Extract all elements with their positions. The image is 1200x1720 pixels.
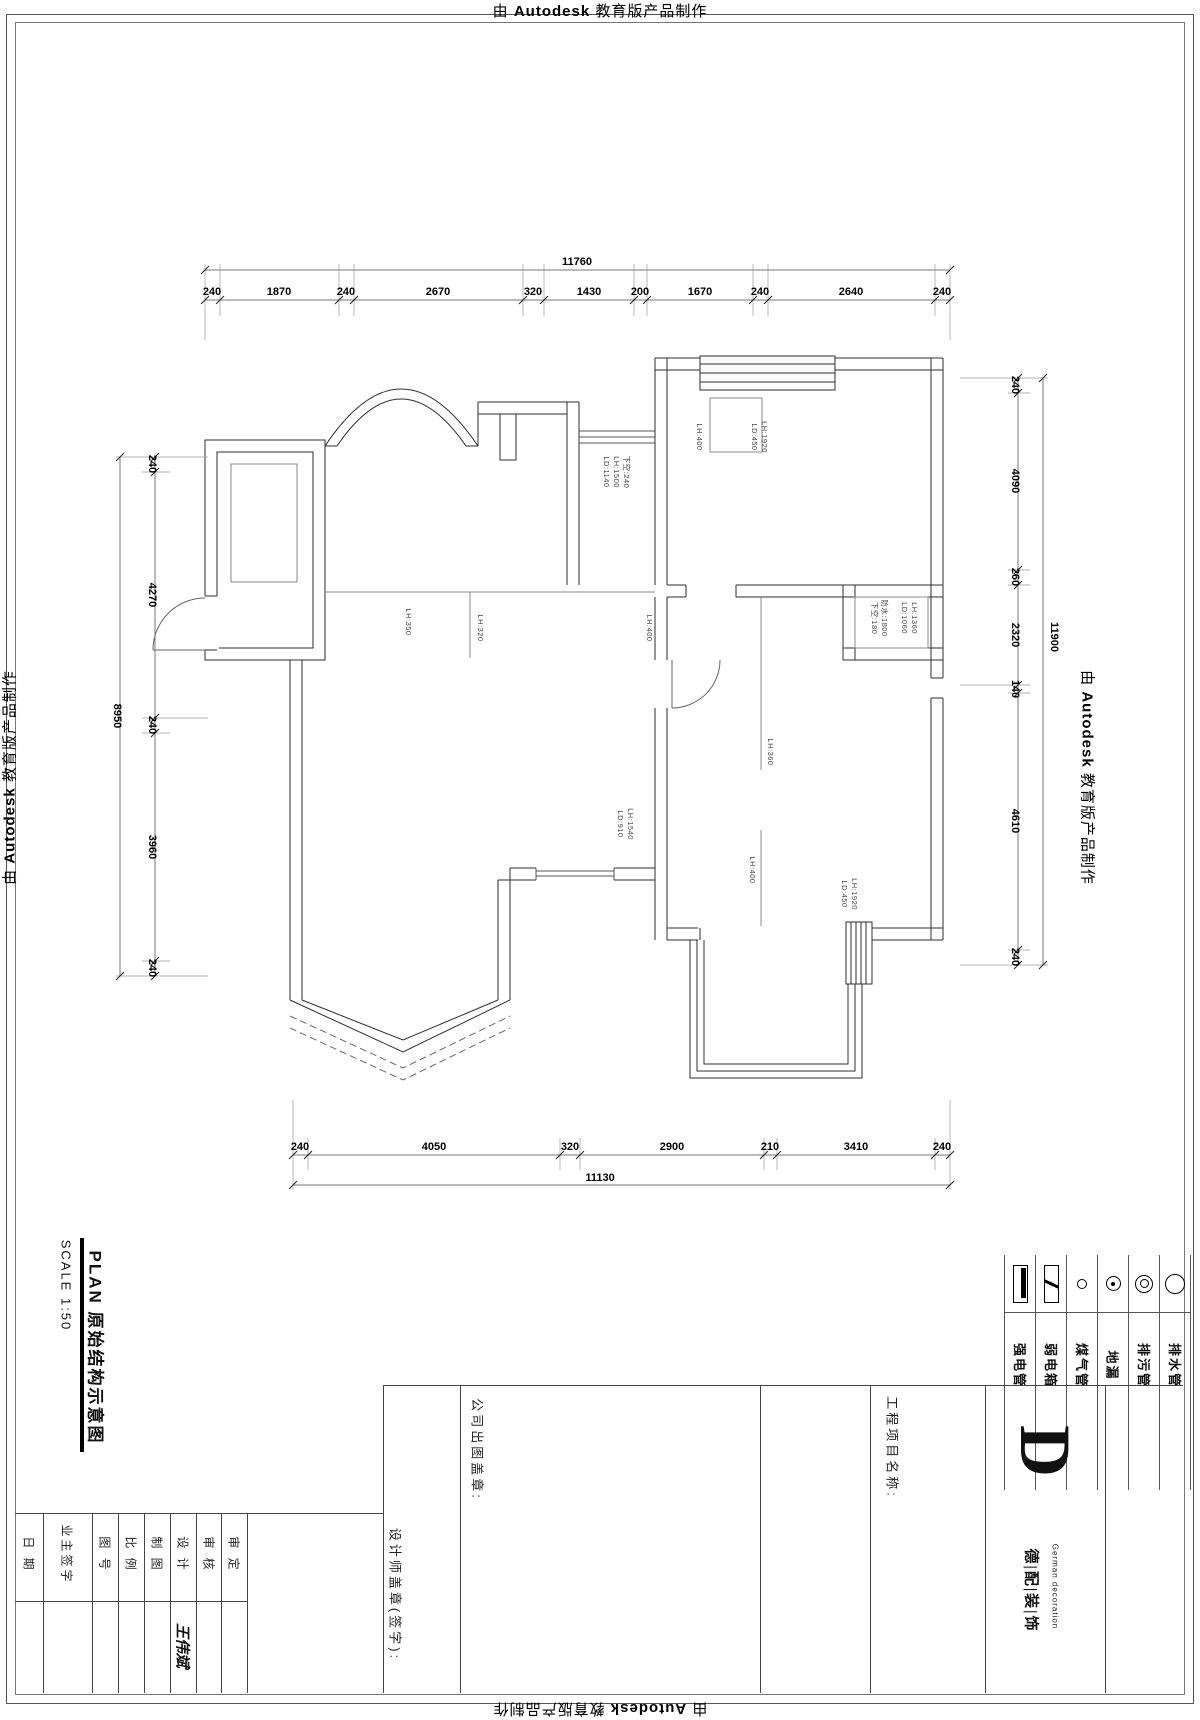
svg-text:260: 260 (1009, 568, 1021, 586)
field-drawing-no: 图 号 (97, 1505, 114, 1605)
svg-text:240: 240 (933, 1141, 951, 1153)
beam-label: LH:360 (766, 738, 775, 765)
titleblock-line (221, 1513, 222, 1693)
designer-seal-label: 设计师盖章(签字): (387, 1495, 406, 1695)
legend-item: 地漏 (1097, 1255, 1128, 1490)
sewage-pipe-icon (1135, 1275, 1153, 1293)
svg-text:3410: 3410 (844, 1141, 868, 1153)
legend-label: 排污管 (1135, 1343, 1154, 1388)
svg-text:1870: 1870 (267, 286, 291, 298)
company-seal-label: 公司出图盖章: (469, 1385, 488, 1515)
titleblock-line (760, 1385, 761, 1693)
svg-text:2640: 2640 (839, 286, 863, 298)
field-date: 日 期 (21, 1505, 38, 1605)
beam-label: 下空:240 (622, 456, 632, 489)
svg-text:320: 320 (561, 1141, 579, 1153)
dim-total: 11130 (585, 1172, 614, 1184)
field-owner-signature: 业主签字 (59, 1505, 76, 1605)
legend-label: 强电管 (1011, 1343, 1030, 1388)
field-scale: 比 例 (123, 1505, 140, 1605)
svg-text:2320: 2320 (1009, 623, 1021, 647)
window-label: LH:1540 (626, 808, 635, 840)
svg-text:240: 240 (933, 286, 951, 298)
field-drafter: 制 图 (149, 1505, 166, 1605)
beam-label: LH:350 (404, 608, 413, 635)
dim-chain-top (201, 264, 954, 340)
dim-total: 11900 (1048, 622, 1060, 652)
titleblock-line (383, 1385, 1183, 1386)
floor-plan-walls (153, 356, 945, 1080)
titleblock-line (985, 1385, 986, 1693)
gas-pipe-icon (1077, 1279, 1087, 1289)
svg-text:140: 140 (1009, 680, 1021, 698)
window-label: LD:450 (750, 423, 759, 450)
legend-label: 地漏 (1104, 1350, 1123, 1380)
legend-item: 排水管 (1159, 1255, 1191, 1490)
window-label: LH:1920 (760, 421, 769, 453)
svg-text:240: 240 (1009, 376, 1021, 394)
dim-chain-left (116, 453, 208, 980)
titleblock-line (383, 1385, 384, 1693)
svg-text:240: 240 (751, 286, 769, 298)
beam-label: LH:400 (748, 856, 757, 883)
svg-text:240: 240 (291, 1141, 309, 1153)
svg-text:2900: 2900 (660, 1141, 684, 1153)
legend-label: 弱电箱 (1042, 1343, 1061, 1388)
svg-text:1670: 1670 (688, 286, 712, 298)
svg-text:4090: 4090 (1009, 469, 1021, 493)
svg-text:210: 210 (761, 1141, 779, 1153)
legend-label: 煤气管 (1073, 1343, 1092, 1388)
drain-pipe-icon (1165, 1274, 1185, 1294)
weak-current-box-icon (1044, 1265, 1059, 1303)
titleblock-line (144, 1513, 145, 1693)
svg-text:240: 240 (337, 286, 355, 298)
field-checker: 审 核 (201, 1505, 218, 1605)
svg-text:1430: 1430 (577, 286, 601, 298)
titleblock-line (460, 1385, 461, 1693)
svg-text:4270: 4270 (146, 583, 158, 607)
svg-text:240: 240 (203, 286, 221, 298)
dim-labels-right: 11900 240 4090 260 2320 140 4610 240 (1009, 376, 1060, 966)
beam-label: LH:1500 (612, 456, 621, 488)
legend-label: 排水管 (1166, 1343, 1185, 1388)
titleblock-line (1105, 1385, 1106, 1693)
strong-current-conduit-icon (1013, 1265, 1028, 1303)
titleblock-line (170, 1513, 171, 1693)
beam-label: LH:400 (695, 423, 704, 450)
svg-text:4050: 4050 (422, 1141, 446, 1153)
dim-labels-bottom: 11130 240 4050 320 2900 210 3410 240 (291, 1141, 951, 1184)
plan-beam-labels: LH:350 LH:320 LH:400 LD:1140 LH:1500 下空:… (404, 421, 919, 910)
svg-text:240: 240 (1009, 948, 1021, 966)
svg-text:4610: 4610 (1009, 809, 1021, 833)
floor-drain-icon (1106, 1276, 1121, 1291)
dim-total: 8950 (111, 704, 123, 728)
dim-labels-top: 11760 240 1870 240 2670 320 1430 200 167… (203, 256, 951, 298)
beam-label: LH:320 (476, 614, 485, 641)
window-label: LD:910 (616, 810, 625, 837)
window-label: LH:1920 (850, 878, 859, 910)
shaft-label: 下空:180 (870, 602, 880, 635)
svg-text:240: 240 (146, 455, 158, 473)
shaft-label: 防水:1800 (880, 599, 890, 636)
window-label: LD:450 (840, 880, 849, 907)
svg-text:2670: 2670 (426, 286, 450, 298)
svg-text:200: 200 (631, 286, 649, 298)
company-name-en: German decoration (1051, 1527, 1060, 1647)
legend-item: 排污管 (1128, 1255, 1159, 1490)
dim-labels-left: 8950 240 4270 240 3960 240 (111, 455, 158, 977)
project-name-label: 工程项目名称: (884, 1388, 903, 1508)
beam-label: LH:400 (645, 614, 654, 641)
titleblock-line (43, 1513, 44, 1693)
field-approver: 审 定 (226, 1505, 243, 1605)
svg-text:320: 320 (524, 286, 542, 298)
svg-text:3960: 3960 (146, 835, 158, 859)
drafter-signature: 王伟斌 (173, 1596, 194, 1696)
dim-chain-right (960, 374, 1048, 969)
svg-text:240: 240 (146, 716, 158, 734)
shaft-label: LD:1060 (900, 602, 909, 634)
shaft-label: LH:1360 (910, 602, 919, 634)
company-logo: D (1009, 1411, 1081, 1491)
titleblock-line (118, 1513, 119, 1693)
field-designer: 设 计 (175, 1505, 192, 1605)
titleblock-line (247, 1513, 248, 1693)
dim-total: 11760 (562, 256, 592, 268)
company-name: 德|配|装|饰 (1022, 1531, 1043, 1651)
svg-text:240: 240 (146, 959, 158, 977)
titleblock-line (92, 1513, 93, 1693)
titleblock-line (870, 1385, 871, 1693)
beam-label: LD:1140 (602, 456, 611, 487)
titleblock-line (196, 1513, 197, 1693)
